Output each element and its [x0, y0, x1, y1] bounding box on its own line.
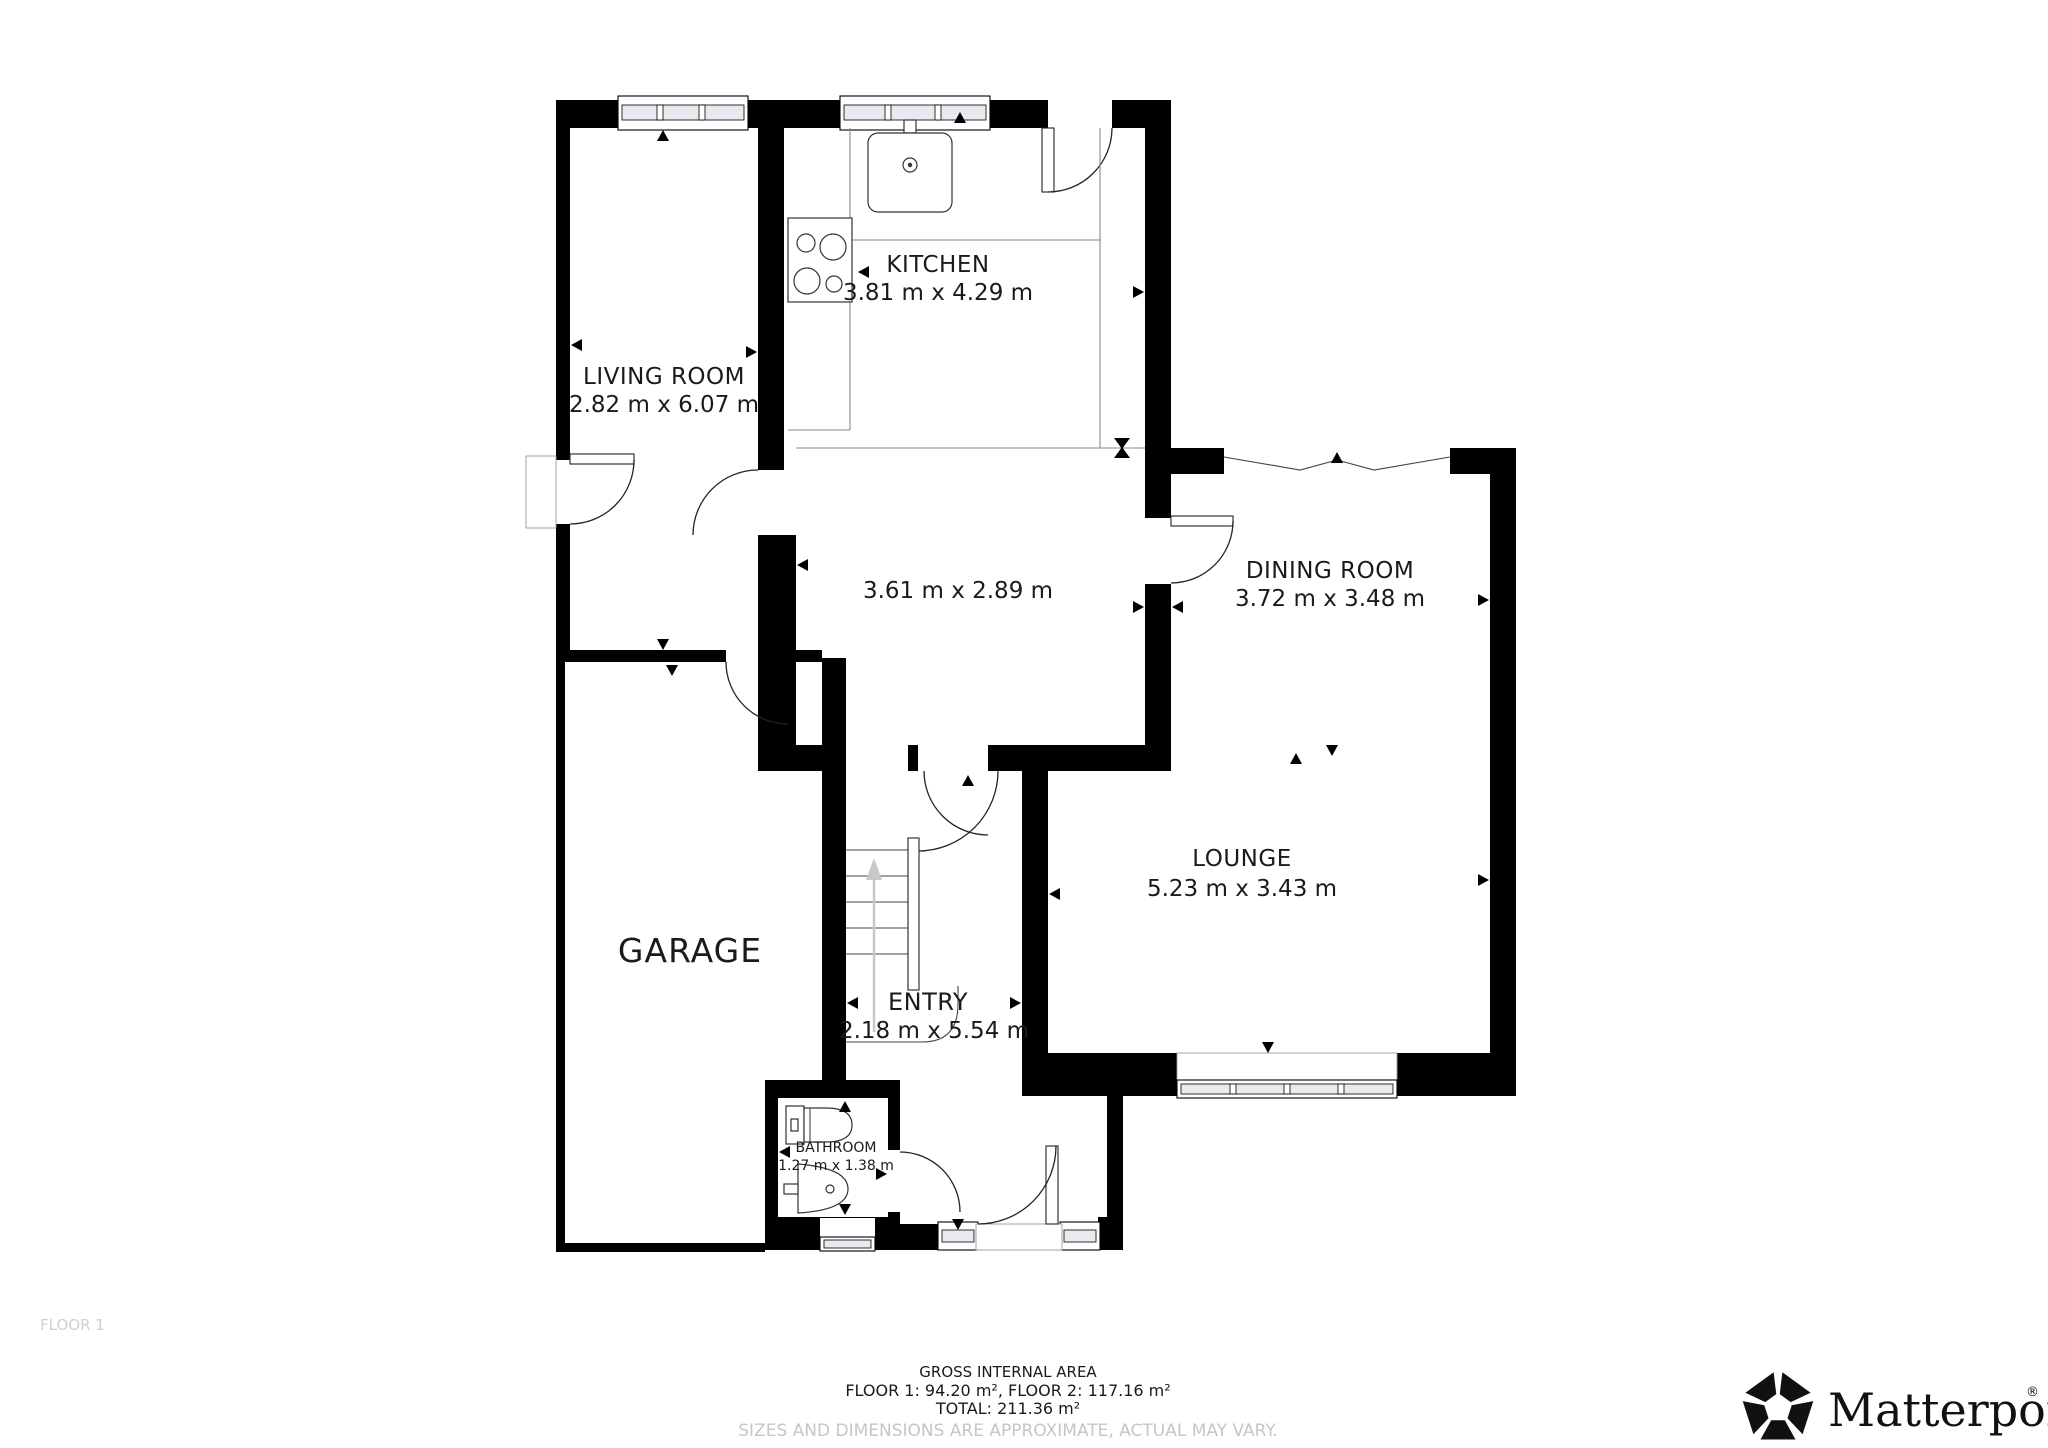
- matterport-logo: Matterport ®: [1743, 1372, 2048, 1439]
- floorplan-canvas: LIVING ROOM 2.82 m x 6.07 m KITCHEN 3.81…: [0, 0, 2048, 1448]
- hallway-dims: 3.61 m x 2.89 m: [863, 578, 1053, 604]
- living-room-label: LIVING ROOM: [583, 364, 745, 390]
- door-dining: [1171, 516, 1233, 583]
- bathroom-label: BATHROOM: [795, 1140, 876, 1156]
- kitchen-dims: 3.81 m x 4.29 m: [843, 280, 1033, 306]
- lounge-dims: 5.23 m x 3.43 m: [1147, 876, 1337, 902]
- disclaimer-text: SIZES AND DIMENSIONS ARE APPROXIMATE, AC…: [738, 1421, 1277, 1441]
- matterport-pinwheel-icon: [1743, 1372, 1814, 1439]
- door-hall-entry: [918, 771, 998, 851]
- floorplan-page: LIVING ROOM 2.82 m x 6.07 m KITCHEN 3.81…: [0, 0, 2048, 1448]
- kitchen-label: KITCHEN: [886, 252, 989, 278]
- floor-areas-line: FLOOR 1: 94.20 m², FLOOR 2: 117.16 m²: [845, 1381, 1170, 1400]
- window-entry-right: [1060, 1222, 1100, 1250]
- entry-dims: 2.18 m x 5.54 m: [839, 1018, 1029, 1044]
- door-living-exterior: [526, 454, 634, 528]
- entry-label: ENTRY: [888, 988, 968, 1016]
- matterport-wordmark: Matterport: [1828, 1383, 2048, 1437]
- living-room-dims: 2.82 m x 6.07 m: [569, 392, 759, 418]
- registered-mark-icon: ®: [2026, 1385, 2039, 1400]
- room-labels: LIVING ROOM 2.82 m x 6.07 m KITCHEN 3.81…: [569, 252, 1425, 1174]
- door-kitchen-exterior: [1042, 128, 1112, 192]
- dining-room-label: DINING ROOM: [1246, 558, 1414, 584]
- window-lounge-bottom: [1177, 1053, 1397, 1098]
- lounge-label: LOUNGE: [1192, 846, 1292, 872]
- stairs-up-arrow-icon: [866, 858, 882, 880]
- kitchen-sink-icon: [868, 120, 952, 212]
- door-living-hall: [693, 470, 758, 535]
- door-bathroom: [900, 1152, 960, 1212]
- total-area-line: TOTAL: 211.36 m²: [935, 1399, 1080, 1418]
- dining-room-dims: 3.72 m x 3.48 m: [1235, 586, 1425, 612]
- window-bathroom-bottom: [820, 1237, 875, 1251]
- footer: FLOOR 1 GROSS INTERNAL AREA FLOOR 1: 94.…: [40, 1316, 1278, 1441]
- bathroom-dims: 1.27 m x 1.38 m: [778, 1158, 894, 1174]
- window-living-top: [618, 96, 748, 130]
- door-front-entry: [976, 1146, 1062, 1250]
- floor-tag: FLOOR 1: [40, 1316, 105, 1334]
- garage-label: GARAGE: [618, 931, 762, 970]
- gross-area-title: GROSS INTERNAL AREA: [919, 1363, 1097, 1381]
